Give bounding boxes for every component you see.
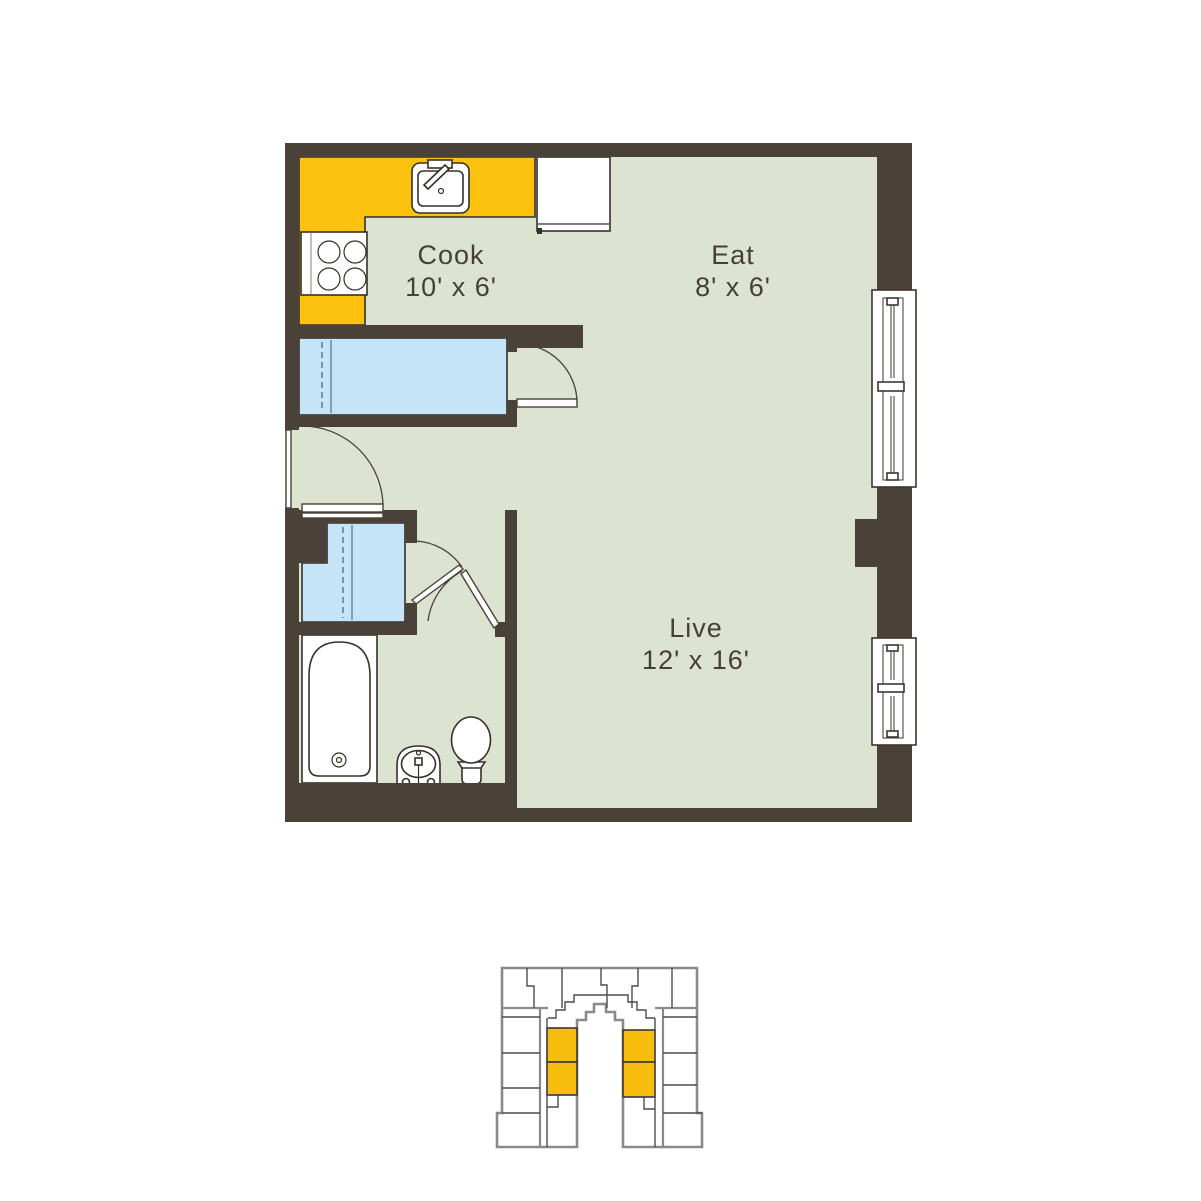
pedestal-sink <box>397 746 440 786</box>
floor-area <box>299 157 877 808</box>
window-sash-lift <box>887 298 898 305</box>
highlighted-unit <box>623 1030 655 1062</box>
window-top <box>872 290 916 487</box>
closet-partition-wall <box>285 415 517 427</box>
wardrobe-door-jamb <box>405 510 417 543</box>
live-dimensions: 12' x 16' <box>642 645 750 675</box>
floor-plan-page: Cook 10' x 6' Eat 8' x 6' Live 12' x 16' <box>0 0 1201 1201</box>
exterior-wall-top <box>285 143 912 157</box>
refrigerator-body <box>537 157 610 231</box>
door-leaf <box>302 504 383 512</box>
wardrobe-wall-chunk <box>299 523 327 563</box>
exterior-wall-right <box>877 745 912 822</box>
kitchen-partition-wall <box>285 325 583 338</box>
kitchen-partition-wall-tab <box>513 338 583 348</box>
bathroom-wall-bottom <box>285 783 517 810</box>
exterior-wall-right <box>877 487 912 638</box>
cook-label: Cook <box>417 240 484 270</box>
window-bottom <box>872 638 916 745</box>
eat-dimensions: 8' x 6' <box>695 272 771 302</box>
bathroom-wall-top <box>285 622 417 635</box>
closet-door-jamb <box>507 338 517 352</box>
cook-dimensions: 10' x 6' <box>405 272 497 302</box>
living-partition-wall <box>505 510 517 812</box>
door-leaf <box>517 399 577 407</box>
stove <box>301 232 367 295</box>
eat-label: Eat <box>711 240 755 270</box>
faucet-icon <box>415 758 422 765</box>
window-sash-lift <box>887 731 898 737</box>
exterior-wall-bottom <box>285 808 912 822</box>
door-threshold <box>286 430 291 508</box>
door-threshold <box>302 513 383 518</box>
bathtub <box>302 635 377 783</box>
live-label: Live <box>669 613 723 643</box>
window-sash-lift <box>887 645 898 651</box>
window-meeting-rail <box>878 684 904 692</box>
exterior-wall-right <box>877 143 912 290</box>
highlighted-unit <box>623 1062 655 1097</box>
refrigerator-handle <box>537 228 542 234</box>
building-key-plan <box>497 968 702 1147</box>
bathtub-basin <box>309 642 370 776</box>
refrigerator <box>537 157 610 234</box>
faucet-base <box>428 160 452 168</box>
kitchen-sink <box>412 160 469 213</box>
wall-pier <box>855 519 877 567</box>
window-meeting-rail <box>878 382 904 391</box>
floor-plan-svg: Cook 10' x 6' Eat 8' x 6' Live 12' x 16' <box>0 0 1201 1201</box>
hall-closet <box>299 338 507 415</box>
highlighted-unit <box>547 1062 577 1095</box>
toilet-bowl <box>452 717 491 763</box>
exterior-wall-left <box>285 508 299 822</box>
exterior-wall-left <box>285 143 299 430</box>
highlighted-unit <box>547 1028 577 1062</box>
window-sash-lift <box>887 473 898 480</box>
